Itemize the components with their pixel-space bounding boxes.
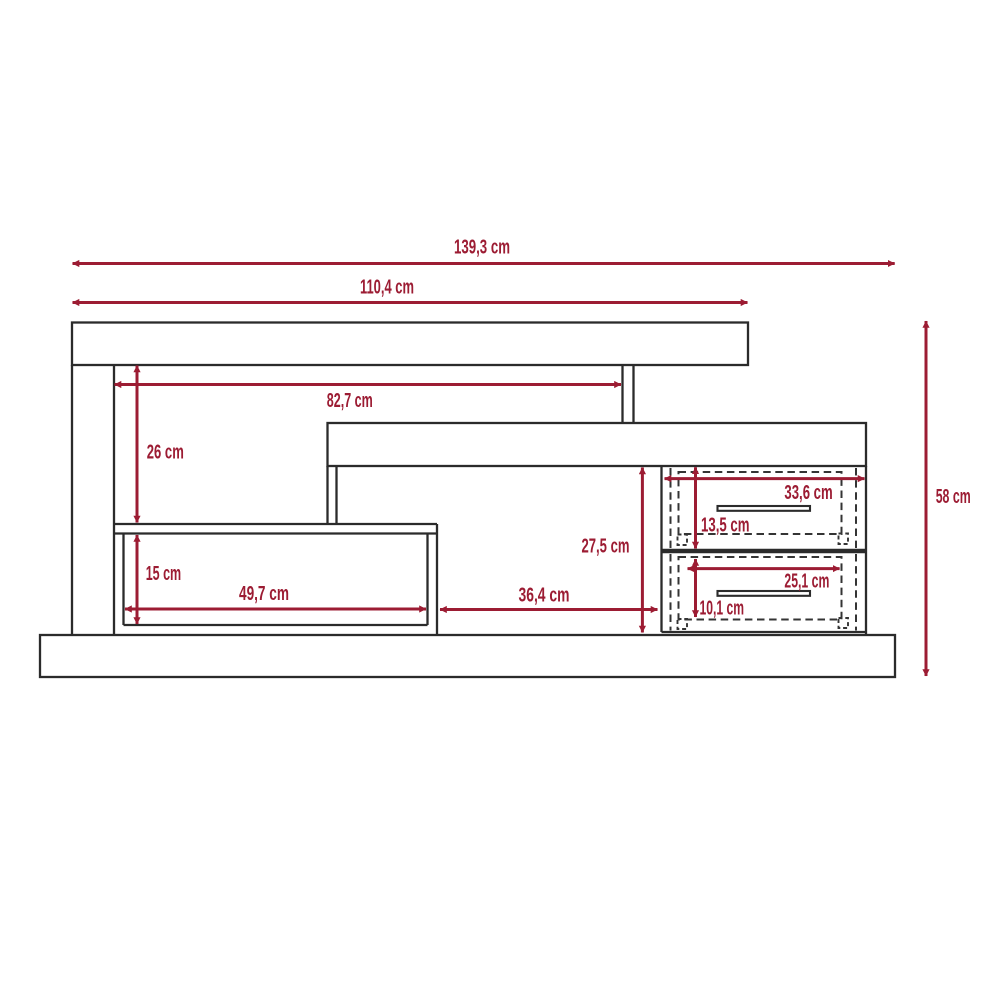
- svg-text:10,1 cm: 10,1 cm: [700, 596, 744, 619]
- svg-text:33,6 cm: 33,6 cm: [784, 480, 832, 504]
- svg-text:82,7 cm: 82,7 cm: [327, 389, 373, 412]
- svg-text:27,5 cm: 27,5 cm: [582, 533, 630, 557]
- svg-text:26 cm: 26 cm: [147, 439, 184, 463]
- svg-text:139,3 cm: 139,3 cm: [454, 235, 510, 259]
- svg-text:15 cm: 15 cm: [146, 562, 181, 585]
- svg-text:36,4 cm: 36,4 cm: [519, 583, 570, 606]
- svg-text:110,4 cm: 110,4 cm: [360, 274, 414, 298]
- svg-text:25,1 cm: 25,1 cm: [784, 569, 829, 592]
- svg-text:58 cm: 58 cm: [936, 485, 971, 508]
- svg-text:49,7 cm: 49,7 cm: [239, 581, 289, 605]
- svg-text:13,5 cm: 13,5 cm: [701, 512, 749, 536]
